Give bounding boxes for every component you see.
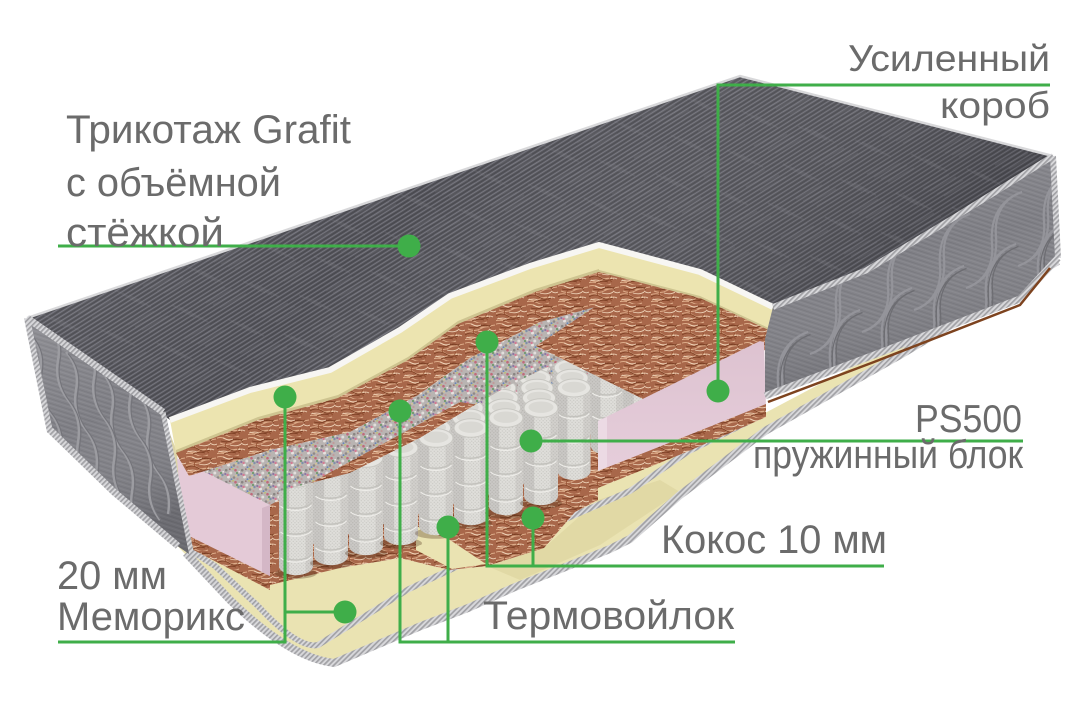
svg-text:Кокос 10 мм: Кокос 10 мм xyxy=(661,518,887,562)
svg-text:Термовойлок: Термовойлок xyxy=(483,594,735,638)
svg-text:короб: короб xyxy=(940,85,1050,126)
svg-text:Трикотаж Grafit: Трикотаж Grafit xyxy=(66,108,351,152)
svg-text:пружинный блок: пружинный блок xyxy=(753,433,1023,477)
svg-text:Меморикс: Меморикс xyxy=(57,595,245,639)
svg-text:стёжкой: стёжкой xyxy=(66,211,224,255)
svg-text:с объёмной: с объёмной xyxy=(66,161,281,205)
svg-text:20 мм: 20 мм xyxy=(57,554,167,598)
svg-text:Усиленный: Усиленный xyxy=(848,38,1050,79)
